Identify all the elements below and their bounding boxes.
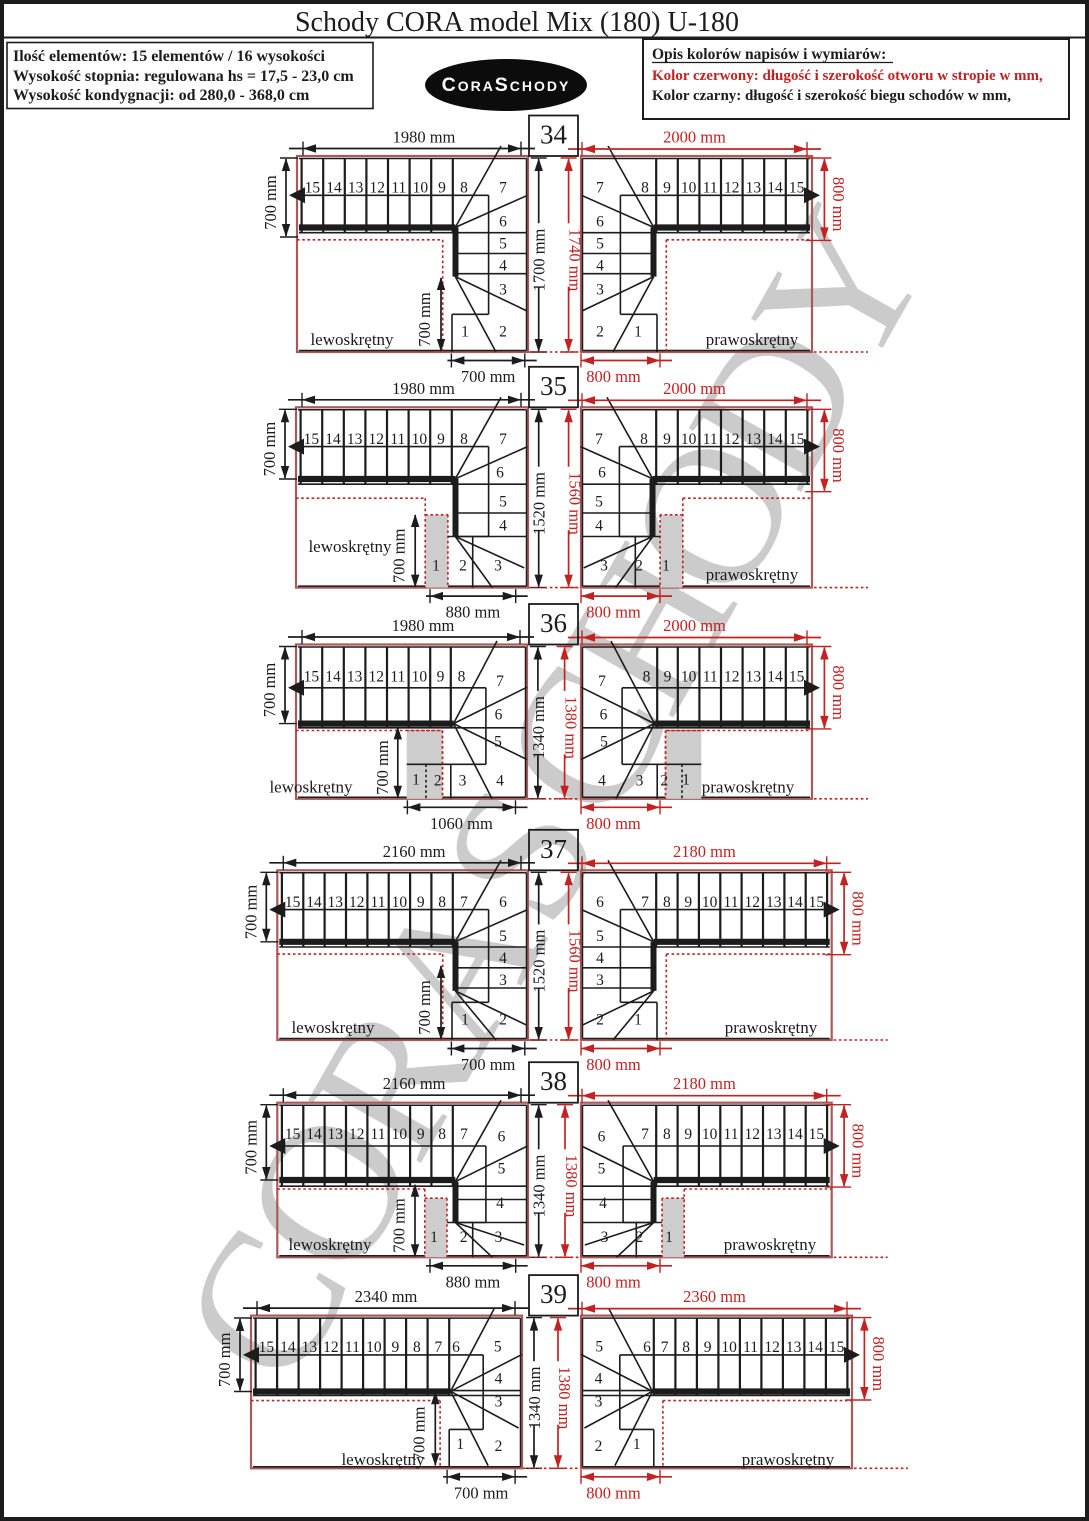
svg-text:3: 3 xyxy=(596,282,604,299)
svg-text:1340 mm: 1340 mm xyxy=(530,1154,549,1217)
svg-text:700 mm: 700 mm xyxy=(373,740,392,795)
svg-text:700 mm: 700 mm xyxy=(241,885,260,940)
svg-text:7: 7 xyxy=(596,180,604,197)
svg-text:3: 3 xyxy=(595,1394,603,1411)
svg-text:1560 mm: 1560 mm xyxy=(566,472,585,535)
svg-text:1740 mm: 1740 mm xyxy=(566,229,585,292)
svg-text:10: 10 xyxy=(366,1339,382,1356)
svg-text:10: 10 xyxy=(392,1126,408,1143)
svg-text:7: 7 xyxy=(641,1126,649,1143)
svg-text:1340 mm: 1340 mm xyxy=(529,696,548,759)
svg-text:9: 9 xyxy=(437,669,445,686)
svg-text:12: 12 xyxy=(323,1339,339,1356)
svg-text:1: 1 xyxy=(682,772,690,789)
svg-text:11: 11 xyxy=(371,1126,386,1143)
svg-text:3: 3 xyxy=(600,558,608,575)
svg-text:9: 9 xyxy=(684,894,692,911)
svg-text:lewoskrętny: lewoskrętny xyxy=(310,330,394,349)
svg-text:8: 8 xyxy=(641,180,649,197)
svg-text:6: 6 xyxy=(499,214,507,231)
svg-text:800 mm: 800 mm xyxy=(829,665,848,720)
svg-text:8: 8 xyxy=(460,180,468,197)
svg-text:12: 12 xyxy=(724,431,740,448)
svg-text:15: 15 xyxy=(809,1126,825,1143)
svg-text:15: 15 xyxy=(789,180,805,197)
svg-text:3: 3 xyxy=(499,972,507,989)
svg-text:8: 8 xyxy=(682,1339,690,1356)
svg-text:5: 5 xyxy=(595,494,603,511)
svg-text:1: 1 xyxy=(634,324,642,341)
svg-text:5: 5 xyxy=(494,1339,502,1356)
svg-text:1: 1 xyxy=(430,1229,438,1246)
svg-text:12: 12 xyxy=(368,669,384,686)
svg-text:13: 13 xyxy=(766,1126,782,1143)
svg-text:15: 15 xyxy=(304,669,320,686)
svg-text:15: 15 xyxy=(789,431,805,448)
svg-text:700 mm: 700 mm xyxy=(241,1120,260,1175)
svg-text:38: 38 xyxy=(540,1066,567,1096)
svg-text:800 mm: 800 mm xyxy=(586,1272,641,1291)
svg-text:prawoskrętny: prawoskrętny xyxy=(706,330,799,349)
svg-text:1380 mm: 1380 mm xyxy=(562,696,581,759)
svg-text:13: 13 xyxy=(328,1126,344,1143)
svg-text:13: 13 xyxy=(746,669,762,686)
svg-text:7: 7 xyxy=(499,431,507,448)
svg-text:12: 12 xyxy=(349,1126,365,1143)
svg-text:1560 mm: 1560 mm xyxy=(566,930,585,993)
svg-text:12: 12 xyxy=(745,894,761,911)
svg-text:6: 6 xyxy=(598,465,606,482)
svg-text:6: 6 xyxy=(596,894,604,911)
svg-text:Ilość elementów: 15 elementów: Ilość elementów: 15 elementów / 16 wysok… xyxy=(13,48,326,65)
svg-text:8: 8 xyxy=(438,894,446,911)
svg-text:800 mm: 800 mm xyxy=(829,177,848,232)
svg-text:2: 2 xyxy=(434,773,442,790)
svg-text:12: 12 xyxy=(724,669,740,686)
svg-text:13: 13 xyxy=(746,431,762,448)
svg-text:15: 15 xyxy=(809,894,825,911)
svg-text:10: 10 xyxy=(681,669,697,686)
svg-text:9: 9 xyxy=(438,180,446,197)
svg-text:9: 9 xyxy=(663,431,671,448)
svg-text:2160 mm: 2160 mm xyxy=(383,1074,446,1093)
svg-text:7: 7 xyxy=(661,1339,669,1356)
svg-text:7: 7 xyxy=(435,1339,443,1356)
svg-text:11: 11 xyxy=(703,431,718,448)
svg-text:5: 5 xyxy=(598,1160,606,1177)
svg-text:prawoskrętny: prawoskrętny xyxy=(724,1235,817,1254)
svg-text:800 mm: 800 mm xyxy=(586,1483,641,1502)
svg-text:14: 14 xyxy=(326,180,342,197)
svg-text:2: 2 xyxy=(596,324,604,341)
svg-text:700 mm: 700 mm xyxy=(261,175,280,230)
svg-text:800 mm: 800 mm xyxy=(829,428,848,483)
svg-text:9: 9 xyxy=(704,1339,712,1356)
svg-text:1520 mm: 1520 mm xyxy=(530,472,549,535)
svg-text:4: 4 xyxy=(499,950,507,967)
svg-text:2000 mm: 2000 mm xyxy=(663,128,726,147)
svg-text:6: 6 xyxy=(598,1129,606,1146)
svg-text:9: 9 xyxy=(684,1126,692,1143)
svg-text:3: 3 xyxy=(494,558,502,575)
svg-text:1: 1 xyxy=(456,1436,464,1453)
svg-text:800 mm: 800 mm xyxy=(586,1055,641,1074)
svg-text:5: 5 xyxy=(596,928,604,945)
svg-text:9: 9 xyxy=(663,180,671,197)
svg-text:2000 mm: 2000 mm xyxy=(663,379,726,398)
svg-text:9: 9 xyxy=(417,894,425,911)
svg-text:Wysokość kondygnacji: od 280,0: Wysokość kondygnacji: od 280,0 - 368,0 c… xyxy=(13,87,310,104)
svg-text:800 mm: 800 mm xyxy=(586,814,641,833)
svg-text:4: 4 xyxy=(496,1195,504,1212)
svg-text:7: 7 xyxy=(595,431,603,448)
svg-text:lewoskrętny: lewoskrętny xyxy=(288,1235,372,1254)
svg-text:prawoskrętny: prawoskrętny xyxy=(702,778,795,797)
svg-text:12: 12 xyxy=(369,180,385,197)
svg-text:34: 34 xyxy=(540,120,568,150)
svg-text:8: 8 xyxy=(663,1126,671,1143)
svg-text:CoraSchody: CoraSchody xyxy=(442,74,571,96)
svg-text:1340 mm: 1340 mm xyxy=(525,1366,544,1429)
svg-text:6: 6 xyxy=(452,1339,460,1356)
svg-text:6: 6 xyxy=(499,894,507,911)
svg-text:lewoskrętny: lewoskrętny xyxy=(341,1450,425,1469)
svg-text:1980 mm: 1980 mm xyxy=(392,616,455,635)
svg-text:700 mm: 700 mm xyxy=(260,663,279,718)
svg-text:4: 4 xyxy=(499,518,507,535)
svg-text:3: 3 xyxy=(459,773,467,790)
svg-text:lewoskrętny: lewoskrętny xyxy=(308,537,392,556)
svg-text:prawoskrętny: prawoskrętny xyxy=(725,1018,818,1037)
svg-text:12: 12 xyxy=(764,1339,780,1356)
svg-text:2: 2 xyxy=(499,324,507,341)
svg-text:15: 15 xyxy=(285,1126,301,1143)
svg-text:9: 9 xyxy=(392,1339,400,1356)
svg-text:13: 13 xyxy=(302,1339,318,1356)
svg-text:4: 4 xyxy=(596,258,604,275)
svg-text:Opis kolorów napisów i wymiaró: Opis kolorów napisów i wymiarów: xyxy=(652,46,886,63)
svg-text:9: 9 xyxy=(437,431,445,448)
svg-text:39: 39 xyxy=(540,1279,567,1309)
svg-text:2180 mm: 2180 mm xyxy=(673,1074,736,1093)
svg-text:2000 mm: 2000 mm xyxy=(663,616,726,635)
svg-text:7: 7 xyxy=(460,1126,468,1143)
svg-text:1: 1 xyxy=(412,772,420,789)
svg-text:5: 5 xyxy=(596,236,604,253)
svg-text:14: 14 xyxy=(787,1126,803,1143)
svg-text:13: 13 xyxy=(347,431,363,448)
svg-text:11: 11 xyxy=(391,180,406,197)
svg-text:11: 11 xyxy=(703,669,718,686)
svg-text:15: 15 xyxy=(305,180,321,197)
svg-text:7: 7 xyxy=(460,894,468,911)
svg-text:2: 2 xyxy=(596,1012,604,1029)
svg-text:4: 4 xyxy=(495,1371,503,1388)
svg-text:2: 2 xyxy=(660,773,668,790)
svg-text:1980 mm: 1980 mm xyxy=(392,379,455,398)
svg-text:700 mm: 700 mm xyxy=(415,292,434,347)
svg-text:880 mm: 880 mm xyxy=(446,1272,501,1291)
svg-text:9: 9 xyxy=(664,669,672,686)
svg-text:15: 15 xyxy=(285,894,301,911)
svg-text:13: 13 xyxy=(766,894,782,911)
svg-text:lewoskrętny: lewoskrętny xyxy=(269,778,353,797)
svg-text:1: 1 xyxy=(665,1229,673,1246)
svg-text:6: 6 xyxy=(496,465,504,482)
svg-text:2160 mm: 2160 mm xyxy=(383,842,446,861)
svg-text:7: 7 xyxy=(598,673,606,690)
svg-text:8: 8 xyxy=(663,894,671,911)
svg-text:11: 11 xyxy=(345,1339,360,1356)
svg-text:700 mm: 700 mm xyxy=(390,1198,409,1253)
svg-text:4: 4 xyxy=(596,950,604,967)
svg-text:lewoskrętny: lewoskrętny xyxy=(291,1018,375,1037)
svg-text:700 mm: 700 mm xyxy=(461,367,516,386)
svg-text:8: 8 xyxy=(640,431,648,448)
svg-text:15: 15 xyxy=(259,1339,275,1356)
svg-text:35: 35 xyxy=(540,371,567,401)
svg-text:5: 5 xyxy=(494,734,502,751)
svg-text:10: 10 xyxy=(392,894,408,911)
svg-text:4: 4 xyxy=(595,518,603,535)
svg-text:14: 14 xyxy=(787,894,803,911)
svg-text:11: 11 xyxy=(724,894,739,911)
svg-text:14: 14 xyxy=(767,431,783,448)
svg-text:3: 3 xyxy=(495,1229,503,1246)
svg-text:6: 6 xyxy=(600,706,608,723)
svg-text:Wysokość stopnia: regulowana: Wysokość stopnia: regulowana hs = 17,5 -… xyxy=(13,68,354,85)
svg-text:36: 36 xyxy=(540,608,567,638)
svg-text:9: 9 xyxy=(417,1126,425,1143)
svg-text:2340 mm: 2340 mm xyxy=(355,1287,418,1306)
svg-text:1380 mm: 1380 mm xyxy=(562,1155,581,1218)
svg-text:1: 1 xyxy=(634,1012,642,1029)
svg-text:1: 1 xyxy=(461,324,469,341)
svg-text:10: 10 xyxy=(681,431,697,448)
svg-text:14: 14 xyxy=(325,669,341,686)
svg-text:15: 15 xyxy=(829,1339,845,1356)
svg-text:5: 5 xyxy=(595,1339,603,1356)
svg-text:700 mm: 700 mm xyxy=(260,422,279,477)
svg-text:700 mm: 700 mm xyxy=(215,1332,234,1387)
svg-text:10: 10 xyxy=(412,431,428,448)
svg-text:10: 10 xyxy=(413,180,429,197)
svg-text:37: 37 xyxy=(540,834,567,864)
svg-text:11: 11 xyxy=(703,180,718,197)
svg-text:12: 12 xyxy=(745,1126,761,1143)
svg-text:2: 2 xyxy=(495,1438,503,1455)
svg-text:10: 10 xyxy=(681,180,697,197)
svg-text:11: 11 xyxy=(371,894,386,911)
svg-text:6: 6 xyxy=(643,1339,651,1356)
svg-text:8: 8 xyxy=(643,669,651,686)
svg-text:700 mm: 700 mm xyxy=(415,980,434,1035)
svg-text:700 mm: 700 mm xyxy=(461,1055,516,1074)
svg-text:3: 3 xyxy=(636,773,644,790)
svg-text:11: 11 xyxy=(390,669,405,686)
svg-text:4: 4 xyxy=(598,773,606,790)
svg-text:1: 1 xyxy=(633,1436,641,1453)
svg-text:1980 mm: 1980 mm xyxy=(393,128,456,147)
svg-text:2: 2 xyxy=(595,1438,603,1455)
svg-text:13: 13 xyxy=(746,180,762,197)
svg-text:13: 13 xyxy=(347,669,363,686)
svg-text:3: 3 xyxy=(499,282,507,299)
svg-text:2360 mm: 2360 mm xyxy=(683,1287,746,1306)
svg-text:7: 7 xyxy=(641,894,649,911)
svg-text:11: 11 xyxy=(743,1339,758,1356)
svg-text:7: 7 xyxy=(496,673,504,690)
svg-text:14: 14 xyxy=(306,894,322,911)
svg-text:2: 2 xyxy=(635,558,643,575)
svg-text:2: 2 xyxy=(499,1012,507,1029)
svg-text:Kolor czerwony: długość i sze: Kolor czerwony: długość i szerokość otwo… xyxy=(652,68,1043,84)
svg-text:10: 10 xyxy=(702,1126,718,1143)
svg-text:10: 10 xyxy=(412,669,428,686)
svg-text:12: 12 xyxy=(349,894,365,911)
svg-text:4: 4 xyxy=(496,773,504,790)
svg-text:8: 8 xyxy=(460,431,468,448)
svg-text:6: 6 xyxy=(596,214,604,231)
svg-text:11: 11 xyxy=(724,1126,739,1143)
svg-text:1060 mm: 1060 mm xyxy=(430,814,493,833)
svg-text:1520 mm: 1520 mm xyxy=(530,930,549,993)
svg-text:800 mm: 800 mm xyxy=(586,603,641,622)
svg-text:800 mm: 800 mm xyxy=(586,367,641,386)
svg-text:700 mm: 700 mm xyxy=(454,1483,509,1502)
svg-text:14: 14 xyxy=(767,180,783,197)
svg-text:Kolor czarny: długość i szero: Kolor czarny: długość i szerokość biegu … xyxy=(652,88,1011,104)
svg-text:1: 1 xyxy=(432,558,440,575)
svg-text:5: 5 xyxy=(499,494,507,511)
svg-text:800 mm: 800 mm xyxy=(849,1124,868,1179)
svg-text:15: 15 xyxy=(789,669,805,686)
svg-text:13: 13 xyxy=(786,1339,802,1356)
svg-text:3: 3 xyxy=(601,1229,609,1246)
svg-text:1: 1 xyxy=(461,1012,469,1029)
svg-text:4: 4 xyxy=(499,258,507,275)
svg-text:4: 4 xyxy=(599,1195,607,1212)
svg-text:13: 13 xyxy=(328,894,344,911)
svg-text:800 mm: 800 mm xyxy=(849,891,868,946)
svg-text:6: 6 xyxy=(498,1129,506,1146)
svg-text:10: 10 xyxy=(721,1339,737,1356)
svg-text:800 mm: 800 mm xyxy=(869,1337,888,1392)
svg-text:prawoskrętny: prawoskrętny xyxy=(706,565,799,584)
svg-text:10: 10 xyxy=(702,894,718,911)
svg-text:12: 12 xyxy=(368,431,384,448)
svg-text:700 mm: 700 mm xyxy=(390,528,409,583)
svg-text:14: 14 xyxy=(325,431,341,448)
svg-text:11: 11 xyxy=(390,431,405,448)
svg-text:2180 mm: 2180 mm xyxy=(673,842,736,861)
svg-text:14: 14 xyxy=(807,1339,823,1356)
svg-text:Schody CORA model Mix (180) U-: Schody CORA model Mix (180) U-180 xyxy=(295,7,739,38)
svg-text:6: 6 xyxy=(495,706,503,723)
svg-text:5: 5 xyxy=(600,734,608,751)
svg-text:12: 12 xyxy=(724,180,740,197)
svg-text:14: 14 xyxy=(767,669,783,686)
svg-text:3: 3 xyxy=(596,972,604,989)
svg-text:5: 5 xyxy=(498,1160,506,1177)
svg-text:2: 2 xyxy=(636,1229,644,1246)
svg-text:13: 13 xyxy=(348,180,364,197)
svg-text:14: 14 xyxy=(280,1339,296,1356)
svg-text:14: 14 xyxy=(306,1126,322,1143)
svg-text:1: 1 xyxy=(662,558,670,575)
svg-text:2: 2 xyxy=(459,558,467,575)
svg-text:2: 2 xyxy=(460,1229,468,1246)
svg-text:7: 7 xyxy=(499,180,507,197)
svg-text:8: 8 xyxy=(438,1126,446,1143)
svg-text:15: 15 xyxy=(304,431,320,448)
svg-text:8: 8 xyxy=(458,669,466,686)
svg-text:8: 8 xyxy=(413,1339,421,1356)
svg-text:1700 mm: 1700 mm xyxy=(530,228,549,291)
svg-text:3: 3 xyxy=(495,1394,503,1411)
svg-text:4: 4 xyxy=(595,1371,603,1388)
svg-text:1380 mm: 1380 mm xyxy=(555,1367,574,1430)
svg-text:5: 5 xyxy=(499,236,507,253)
svg-text:prawoskrętny: prawoskrętny xyxy=(742,1450,835,1469)
svg-text:5: 5 xyxy=(499,928,507,945)
